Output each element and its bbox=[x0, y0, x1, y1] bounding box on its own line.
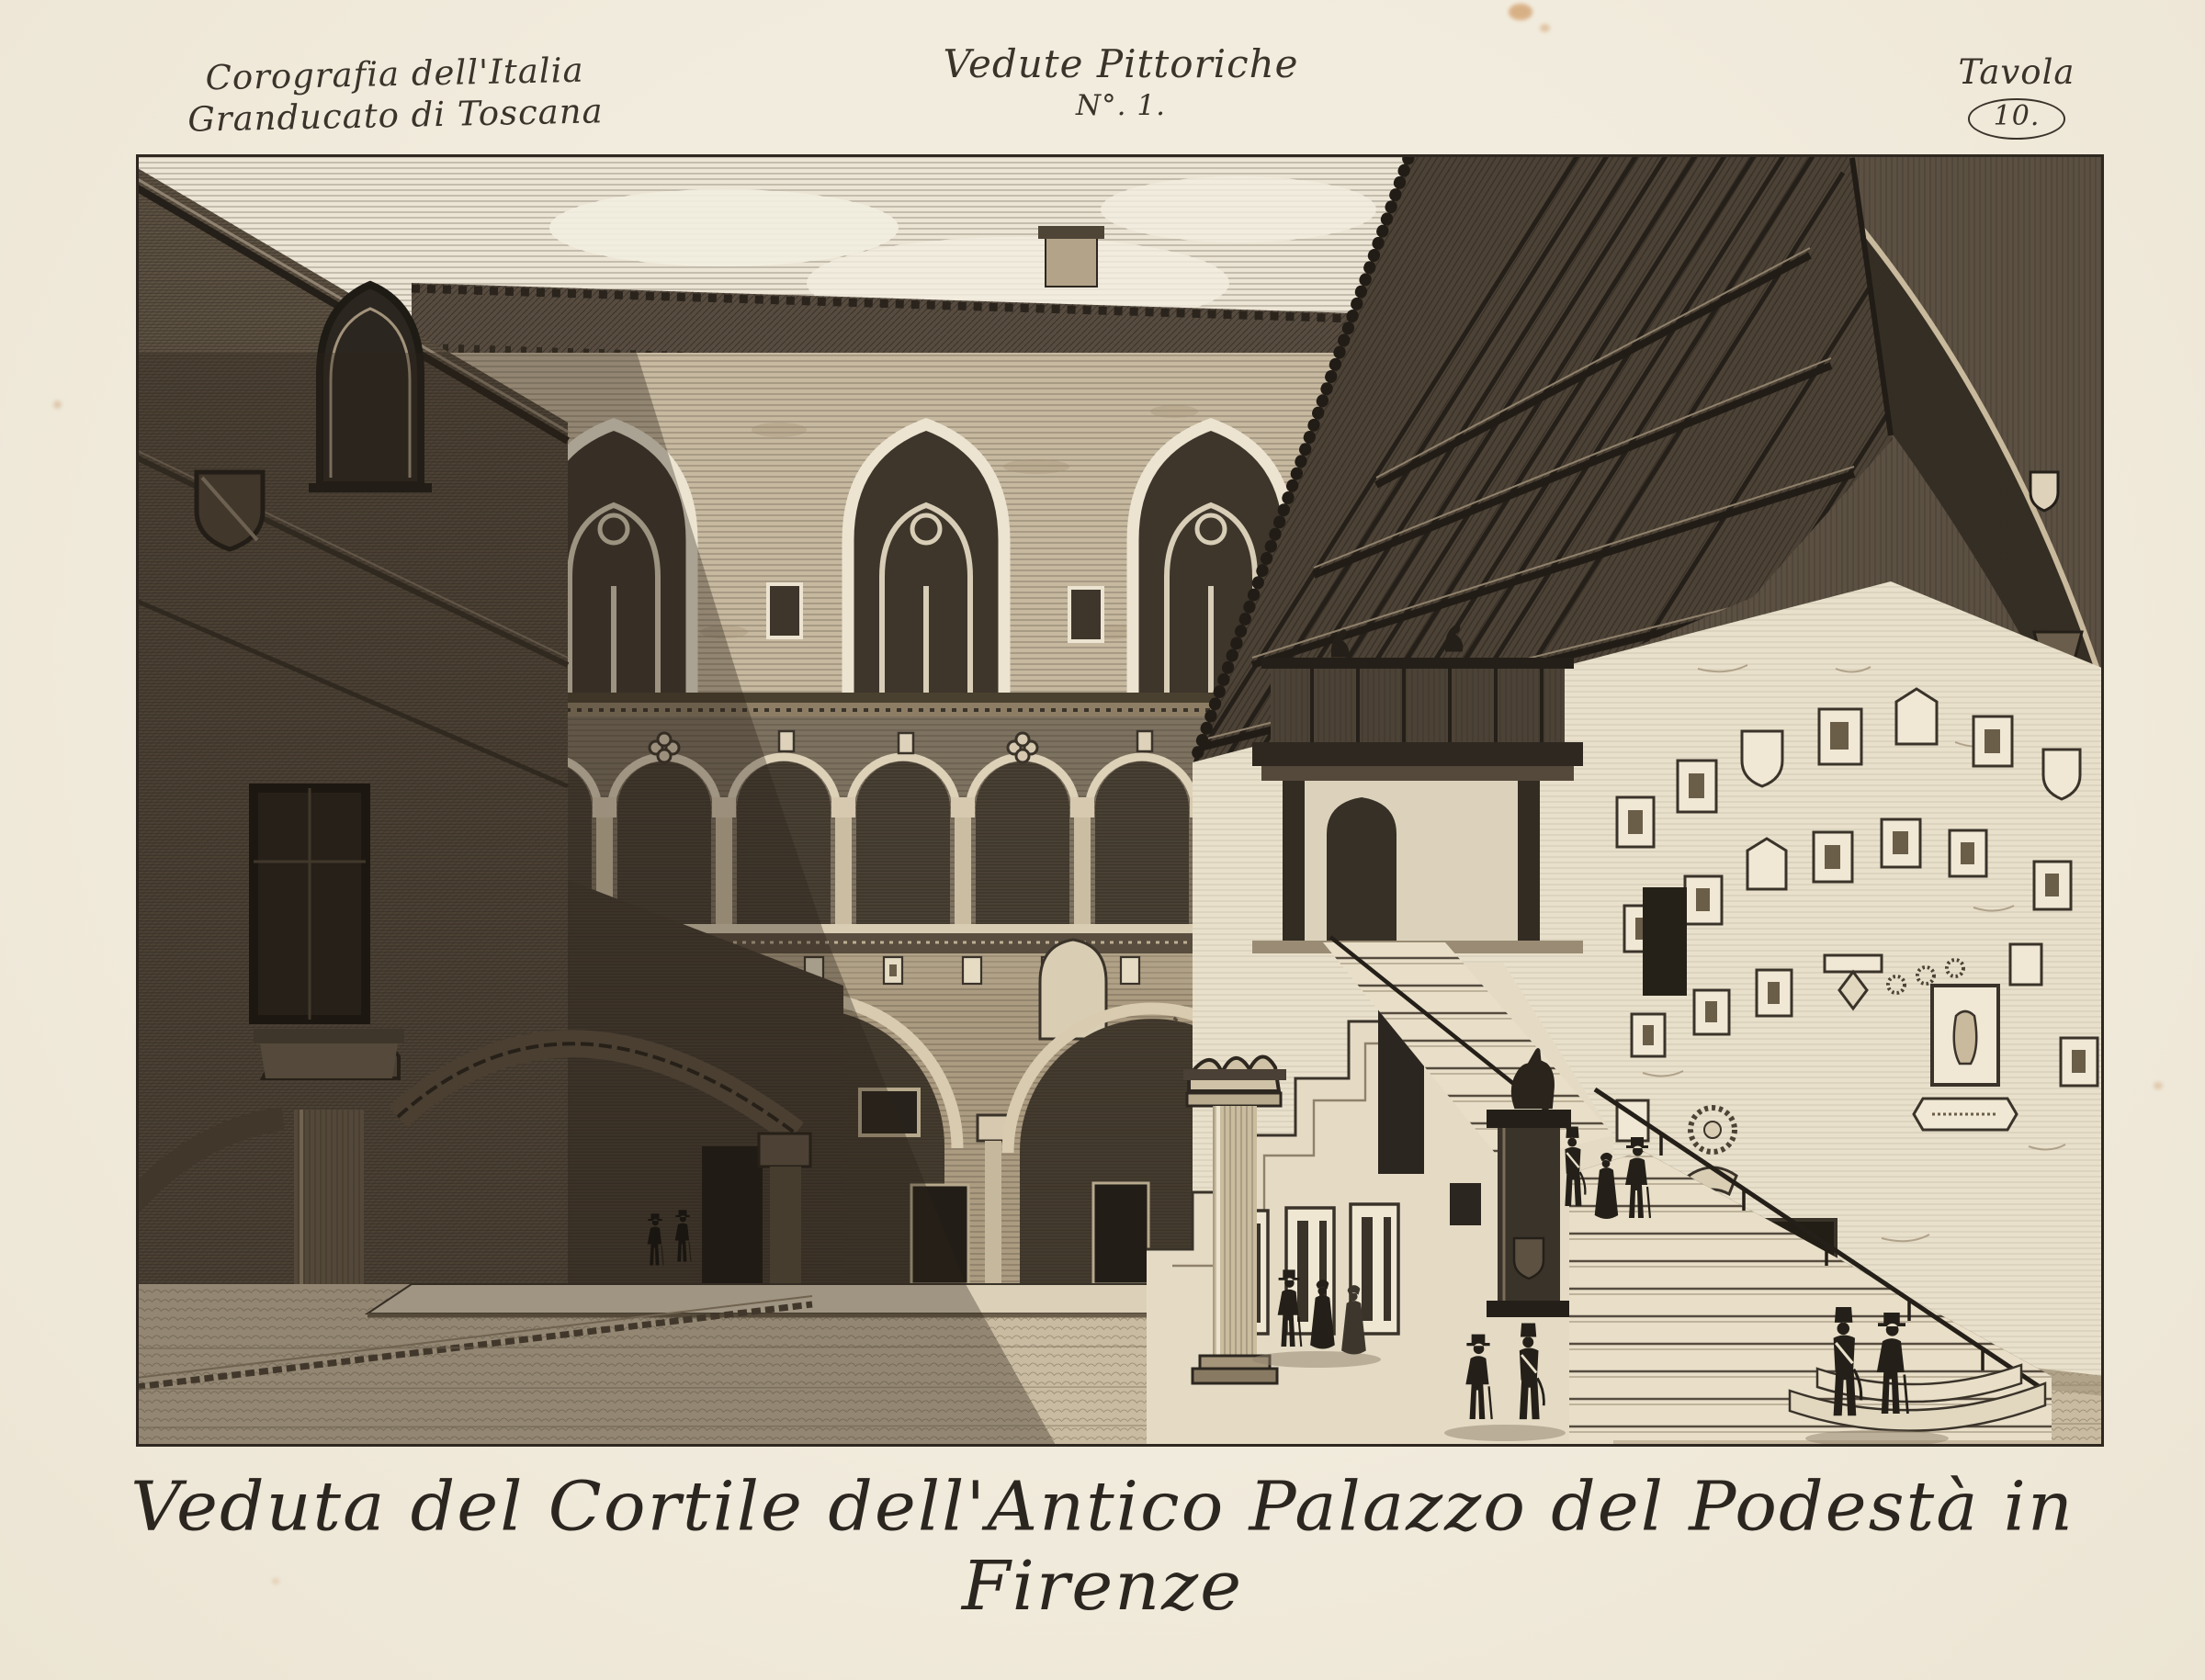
scanned-plate-page: Corografia dell'Italia Granducato di Tos… bbox=[0, 0, 2205, 1680]
wall-window bbox=[1643, 887, 1687, 996]
collection-number: N°. 1. bbox=[882, 89, 1360, 124]
pedestal-shield bbox=[1514, 1238, 1543, 1279]
foxing-stain bbox=[53, 400, 62, 409]
small-window bbox=[1069, 588, 1102, 641]
engraving bbox=[136, 154, 2104, 1447]
plate-caption: Veduta del Cortile dell'Antico Palazzo d… bbox=[92, 1467, 2113, 1626]
understructure-window bbox=[1450, 1183, 1481, 1225]
series-title: Corografia dell'Italia Granducato di Tos… bbox=[119, 48, 672, 142]
landing-arched-door bbox=[1327, 797, 1396, 942]
engraving-plate bbox=[136, 154, 2104, 1447]
collection-title: Vedute Pittoriche N°. 1. bbox=[882, 40, 1360, 124]
foxing-stain bbox=[1540, 24, 1550, 32]
foxing-stain bbox=[2154, 1082, 2163, 1089]
series-line2: Granducato di Toscana bbox=[187, 91, 604, 139]
chimney bbox=[1046, 233, 1097, 287]
corner-shield bbox=[2030, 472, 2058, 511]
collection-line1: Vedute Pittoriche bbox=[943, 41, 1298, 86]
foxing-stain bbox=[1509, 4, 1532, 20]
small-window bbox=[768, 584, 801, 637]
plate-label: Tavola bbox=[1959, 52, 2075, 92]
stair-canopy bbox=[1252, 624, 1583, 953]
chimney-cap bbox=[1038, 226, 1104, 239]
plate-label-block: Tavola 10. bbox=[1865, 51, 2168, 140]
series-line1: Corografia dell'Italia bbox=[205, 51, 584, 98]
plate-number: 10. bbox=[1968, 98, 2066, 140]
